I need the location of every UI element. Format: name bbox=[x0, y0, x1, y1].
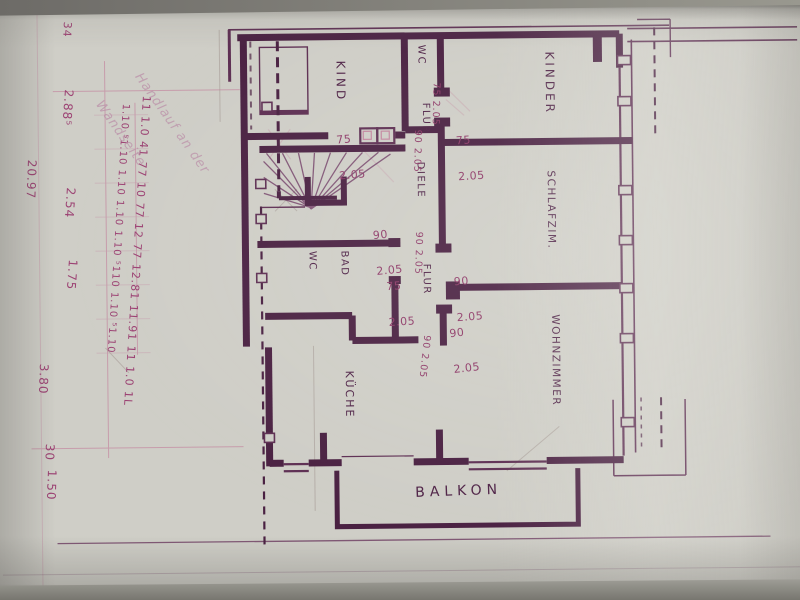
margin-date: 20.97 bbox=[24, 160, 38, 200]
room-label-balkon: BALKON bbox=[415, 483, 502, 501]
margin-dim-30: 30 bbox=[43, 444, 56, 462]
margin-dim-254: 2.54 bbox=[62, 187, 77, 219]
margin-dim-175: 1.75 bbox=[64, 259, 79, 291]
dim-bad-door-height: 2.05 bbox=[388, 315, 415, 329]
dim-flur-mid-door: 90 2.05 bbox=[412, 232, 423, 275]
margin-tick-34: 34 bbox=[61, 21, 73, 38]
room-label-kueche: KÜCHE bbox=[343, 370, 355, 418]
room-label-kinder: KINDER bbox=[543, 51, 556, 115]
room-label-kind: KIND bbox=[334, 61, 347, 103]
dim-wc-door: 75 2.05 bbox=[430, 82, 441, 125]
dim-kind-door-width: 75 bbox=[336, 132, 363, 146]
room-label-wc: WC bbox=[415, 45, 426, 66]
dim-diele-top-door: 90 2.05 bbox=[411, 130, 422, 173]
room-label-bad-wc: BAD WC bbox=[285, 250, 369, 279]
dim-schlaf-door-width: 90 bbox=[453, 274, 480, 288]
margin-dim-150: 1.50 bbox=[44, 470, 58, 501]
margin-dim-380: 3.80 bbox=[36, 364, 50, 395]
bad-label-line2: WC bbox=[306, 251, 317, 279]
ruled-lines bbox=[3, 536, 800, 575]
dim-wohn-door-height: 2.05 bbox=[453, 361, 481, 376]
dim-kinder-door-width: 75 bbox=[456, 134, 483, 148]
dim-kind-door-height: 2.05 bbox=[339, 168, 366, 182]
door-panels bbox=[360, 128, 394, 143]
room-label-schlafzimmer: SCHLAFZIM. bbox=[545, 170, 557, 249]
dim-bad-door-width: 75 bbox=[386, 279, 413, 293]
floor-plan-photo: KIND WC KINDER SCHLAFZIM. WOHNZIMMER KÜC… bbox=[0, 0, 800, 600]
dim-kinder-door-height: 2.05 bbox=[458, 170, 485, 184]
bad-label-line1: BAD bbox=[338, 251, 349, 279]
dim-wohn-door-width: 90 bbox=[449, 325, 477, 340]
dim-bad-entry-width: 90 bbox=[372, 228, 400, 243]
room-label-wohnzimmer: WOHNZIMMER bbox=[549, 314, 561, 406]
